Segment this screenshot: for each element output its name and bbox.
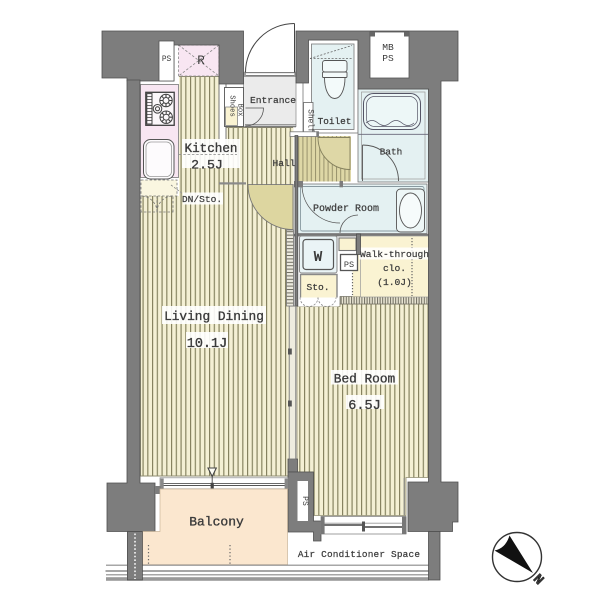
svg-text:10.1J: 10.1J xyxy=(187,337,228,352)
svg-text:Balcony: Balcony xyxy=(189,515,244,530)
svg-text:Powder Room: Powder Room xyxy=(313,203,379,215)
svg-text:MB: MB xyxy=(382,42,394,53)
svg-text:PS: PS xyxy=(344,260,354,270)
svg-text:DN/Sto.: DN/Sto. xyxy=(182,194,222,205)
svg-text:clo.: clo. xyxy=(383,263,406,274)
svg-text:Shoes: Shoes xyxy=(228,95,236,117)
svg-text:Toilet: Toilet xyxy=(318,116,352,127)
svg-text:Kitchen: Kitchen xyxy=(185,142,238,156)
svg-text:PS: PS xyxy=(300,496,309,506)
svg-text:Shelf: Shelf xyxy=(306,109,314,133)
svg-text:6.5J: 6.5J xyxy=(348,399,380,414)
svg-text:Sto.: Sto. xyxy=(306,282,329,293)
svg-text:Bed Room: Bed Room xyxy=(334,372,396,387)
svg-text:(1.0J): (1.0J) xyxy=(377,277,412,288)
svg-text:Walk-through: Walk-through xyxy=(360,249,429,260)
svg-text:Living Dining: Living Dining xyxy=(164,309,264,324)
svg-text:Air Conditioner Space: Air Conditioner Space xyxy=(298,549,421,560)
svg-text:Entrance: Entrance xyxy=(250,95,296,106)
svg-text:Box: Box xyxy=(236,104,244,117)
svg-text:Bath: Bath xyxy=(380,147,403,158)
svg-text:W: W xyxy=(314,250,323,266)
svg-text:Hall: Hall xyxy=(272,158,295,169)
svg-text:R: R xyxy=(197,54,205,68)
svg-text:PS: PS xyxy=(382,53,394,64)
svg-text:PS: PS xyxy=(162,56,172,64)
svg-text:2.5J: 2.5J xyxy=(191,158,223,173)
